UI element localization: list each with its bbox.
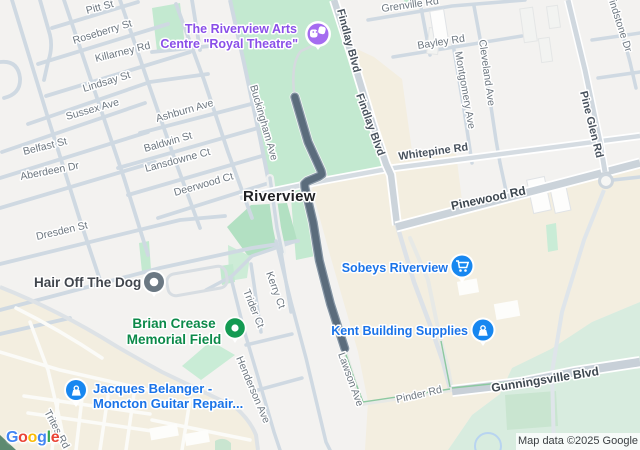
svg-text:The Riverview Arts: The Riverview Arts	[185, 22, 297, 36]
svg-text:Riverview: Riverview	[243, 188, 316, 205]
svg-text:Brian Crease: Brian Crease	[132, 316, 216, 331]
svg-text:Memorial Field: Memorial Field	[127, 332, 222, 347]
svg-text:Jacques Belanger -: Jacques Belanger -	[93, 381, 212, 396]
svg-text:Kent Building Supplies: Kent Building Supplies	[331, 324, 468, 338]
svg-text:Moncton Guitar Repair...: Moncton Guitar Repair...	[93, 396, 243, 411]
svg-text:Sobeys Riverview: Sobeys Riverview	[342, 261, 449, 275]
svg-text:Centre "Royal Theatre": Centre "Royal Theatre"	[160, 37, 298, 51]
svg-text:Hair Off The Dog: Hair Off The Dog	[34, 275, 141, 290]
